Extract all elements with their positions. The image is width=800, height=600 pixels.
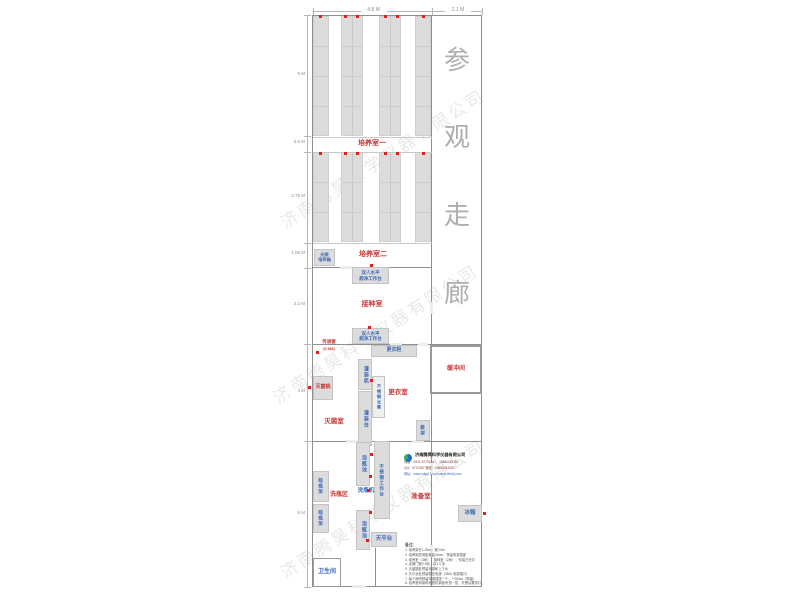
- corridor-char: 观: [444, 125, 470, 151]
- equipment-box: 双人水平 超净工作台: [352, 267, 389, 284]
- dim-tick-left: [304, 441, 311, 442]
- door-opening: [418, 343, 428, 346]
- equipment-box: 天平台: [371, 532, 397, 547]
- dim-label-left: 4 M: [286, 389, 306, 394]
- company-name: 济南腾昊科学仪器有限公司: [415, 452, 484, 459]
- dim-label-left: 1.05 M: [286, 251, 306, 256]
- marker-dot: [483, 512, 486, 515]
- marker-dot: [369, 475, 372, 478]
- equipment-box: 不锈钢工作台: [374, 441, 390, 519]
- marker-dot: [368, 326, 371, 329]
- equipment-box: 冰箱: [458, 505, 482, 522]
- marker-dot: [316, 351, 319, 354]
- equipment-box: 泡瓶池: [356, 510, 370, 550]
- room-label: 更衣室: [353, 390, 443, 397]
- culture-rack-seam: [390, 16, 391, 136]
- culture-rack-column: [415, 152, 431, 242]
- dim-tick-left: [304, 344, 311, 345]
- dim-label-top: 2.1 M: [445, 8, 471, 13]
- room-label: 接种室: [327, 301, 417, 308]
- door-opening: [352, 585, 366, 588]
- marker-dot: [367, 489, 370, 492]
- dim-label-left: 6 M: [286, 511, 306, 516]
- dim-tick-left: [304, 243, 311, 244]
- corridor-char: 走: [444, 203, 470, 229]
- equipment-box: 灭菌锅: [313, 376, 333, 400]
- wall: [313, 152, 432, 153]
- wall: [313, 137, 432, 138]
- dim-tick-top: [482, 8, 483, 15]
- marker-dot: [319, 152, 322, 155]
- dim-label-left: 5 M: [286, 72, 306, 77]
- wall: [313, 441, 482, 442]
- room-label: 灭菌室: [289, 419, 379, 426]
- marker-dot: [396, 15, 399, 18]
- dim-tick-left: [304, 268, 311, 269]
- marker-dot: [366, 539, 369, 542]
- corridor-char: 廊: [444, 281, 470, 307]
- wall: [313, 243, 432, 244]
- equipment-box: 不锈钢长凳: [372, 376, 385, 418]
- culture-rack-seam: [352, 16, 353, 136]
- company-info-block: 济南腾昊科学仪器有限公司 电话：0531-87794467，1586604335…: [404, 452, 484, 477]
- equipment-box: 晾瓶架: [313, 504, 329, 533]
- dim-tick-left: [304, 136, 311, 137]
- equipment-box: 灌装机: [358, 359, 372, 390]
- door-opening: [430, 302, 433, 314]
- room-label: 传递窗: [284, 340, 374, 345]
- dim-tick-top: [313, 8, 314, 15]
- marker-dot: [344, 152, 347, 155]
- culture-rack-column: [313, 152, 329, 242]
- room-label: 缓冲间: [411, 366, 501, 372]
- marker-dot: [344, 15, 347, 18]
- culture-rack-seam: [352, 152, 353, 242]
- marker-dot: [384, 152, 387, 155]
- marker-dot: [422, 152, 425, 155]
- room-label: (0.6M): [284, 347, 374, 351]
- marker-dot: [370, 379, 373, 382]
- marker-dot: [308, 386, 311, 389]
- note-item: 8. 培养室和接种室做彩钢板吊顶一层，天黑后要亮灯。: [405, 581, 481, 586]
- wall: [481, 15, 482, 587]
- company-website: 网址：www.sdyq17.com www.cnhbj.com: [404, 471, 484, 477]
- dim-tick-top: [432, 8, 433, 15]
- dim-label-left: 0.6 M: [286, 140, 306, 145]
- marker-dot: [356, 152, 359, 155]
- room-label: 卫生间: [282, 569, 372, 575]
- wall: [375, 548, 376, 587]
- notes-list: 1. 培养架长1.25m，宽0.5m2. 培养架层间距离高40cm，预留电源插座…: [405, 548, 481, 586]
- marker-dot: [369, 511, 372, 514]
- corridor-char: 参: [444, 48, 470, 74]
- marker-dot: [396, 152, 399, 155]
- marker-dot: [370, 264, 373, 267]
- culture-rack-column: [415, 16, 431, 136]
- room-label: 准备室: [376, 494, 466, 501]
- marker-dot: [384, 15, 387, 18]
- dim-tick-left: [304, 15, 311, 16]
- lab-floorplan-canvas: 济南腾昊科学仪器有限公司济南腾昊科学仪器有限公司济南腾昊科学仪器有限公司 光照 …: [0, 0, 800, 600]
- dim-label-left: 3.2 M: [286, 302, 306, 307]
- wall: [431, 15, 432, 587]
- equipment-box: 泡瓶池: [356, 442, 370, 486]
- dim-line-left: [307, 15, 308, 587]
- door-opening: [340, 266, 352, 269]
- marker-dot: [356, 15, 359, 18]
- dim-label-top: 4.8 M: [361, 8, 387, 13]
- dim-label-left: 3.75 M: [286, 194, 306, 199]
- equipment-box: 更衣柜: [371, 345, 417, 357]
- room-label: 洗瓶机: [321, 489, 411, 495]
- marker-dot: [319, 15, 322, 18]
- dim-tick-left: [304, 152, 311, 153]
- room-label: 培养室二: [328, 251, 418, 258]
- marker-dot: [422, 15, 425, 18]
- culture-rack-seam: [390, 152, 391, 242]
- dim-tick-left: [304, 587, 311, 588]
- culture-rack-column: [313, 16, 329, 136]
- company-logo-icon: [404, 454, 412, 462]
- marker-dot: [370, 453, 373, 456]
- room-label: 培养室一: [327, 140, 417, 147]
- equipment-box: 鞋架: [416, 420, 430, 441]
- notes-block: 备注： 1. 培养架长1.25m，宽0.5m2. 培养架层间距离高40cm，预留…: [405, 542, 481, 586]
